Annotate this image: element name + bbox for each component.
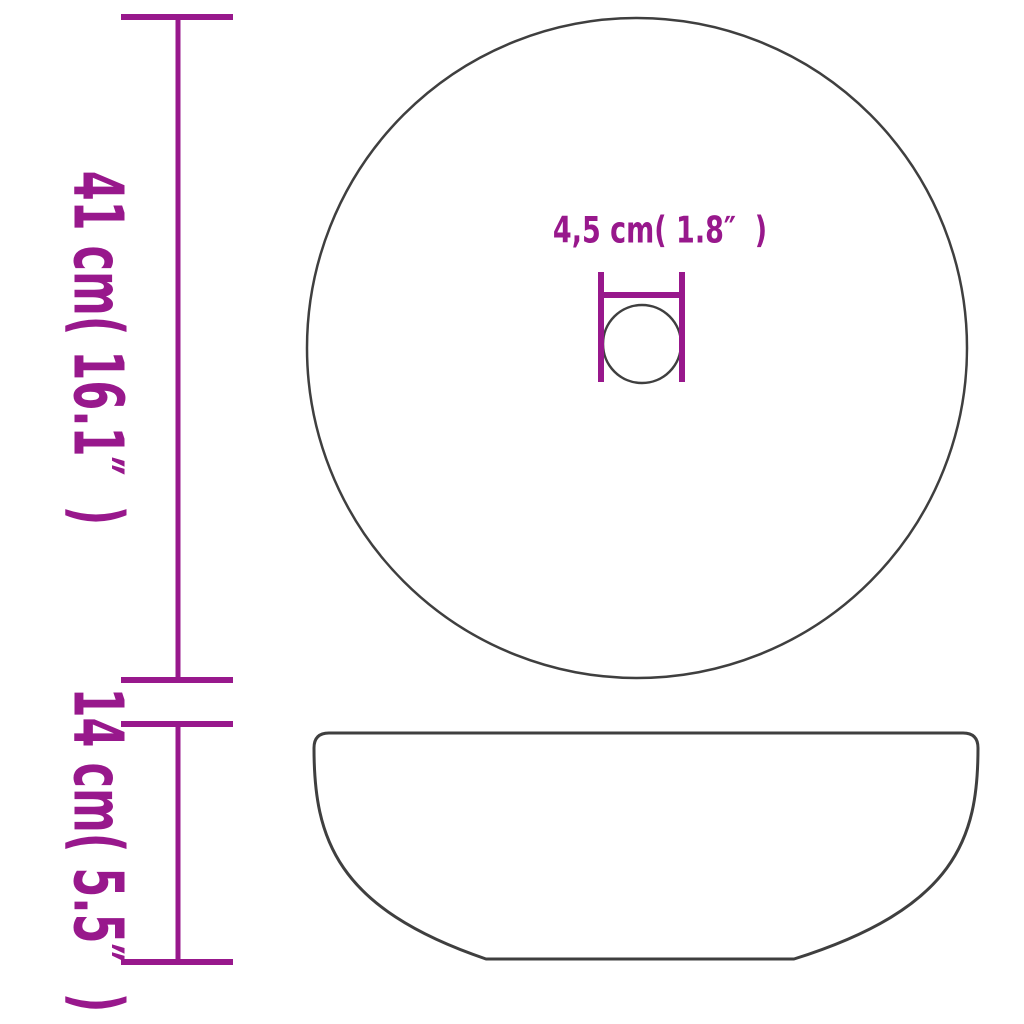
diagram-canvas: 4,5 cm( 1.8″ ) 41 cm( 16.1″ ) 14 cm( 5.5… [0,0,1024,1024]
height-dimension-line [121,724,233,962]
diameter-dimension-line [121,17,233,680]
basin-top-view-outline [307,18,967,678]
drain-diameter-label: 4,5 cm( 1.8″ ) [553,213,767,249]
dimension-diagram-graphics [0,0,1024,1024]
basin-diameter-label: 41 cm( 16.1″ ) [62,171,131,526]
basin-side-view-outline [314,733,978,959]
drain-dimension-line [598,272,685,382]
basin-height-label: 14 cm( 5.5″ ) [62,688,131,1013]
drain-hole-outline [603,305,681,383]
